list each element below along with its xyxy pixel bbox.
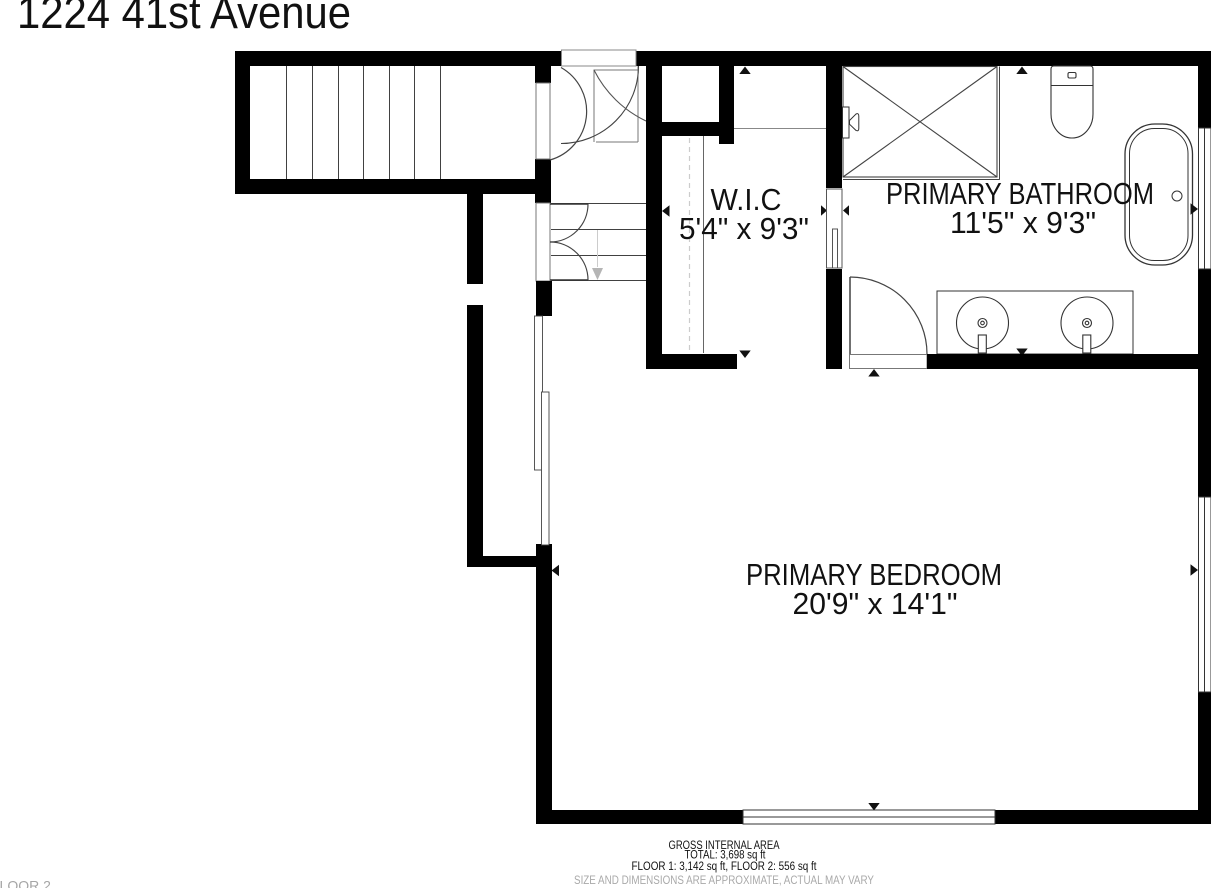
svg-text:FLOOR 1: 3,142 sq ft, FLOOR 2:: FLOOR 1: 3,142 sq ft, FLOOR 2: 556 sq ft [632,861,818,873]
svg-text:TOTAL: 3,698 sq ft: TOTAL: 3,698 sq ft [685,850,767,862]
svg-text:FLOOR 2: FLOOR 2 [0,878,51,888]
svg-text:20'9" x 14'1": 20'9" x 14'1" [793,586,958,621]
svg-text:11'5" x 9'3": 11'5" x 9'3" [950,205,1096,240]
svg-text:5'4" x 9'3": 5'4" x 9'3" [679,211,809,246]
svg-text:SIZE AND DIMENSIONS ARE APPROX: SIZE AND DIMENSIONS ARE APPROXIMATE, ACT… [574,875,874,887]
svg-text:1224 41st Avenue: 1224 41st Avenue [17,0,351,38]
